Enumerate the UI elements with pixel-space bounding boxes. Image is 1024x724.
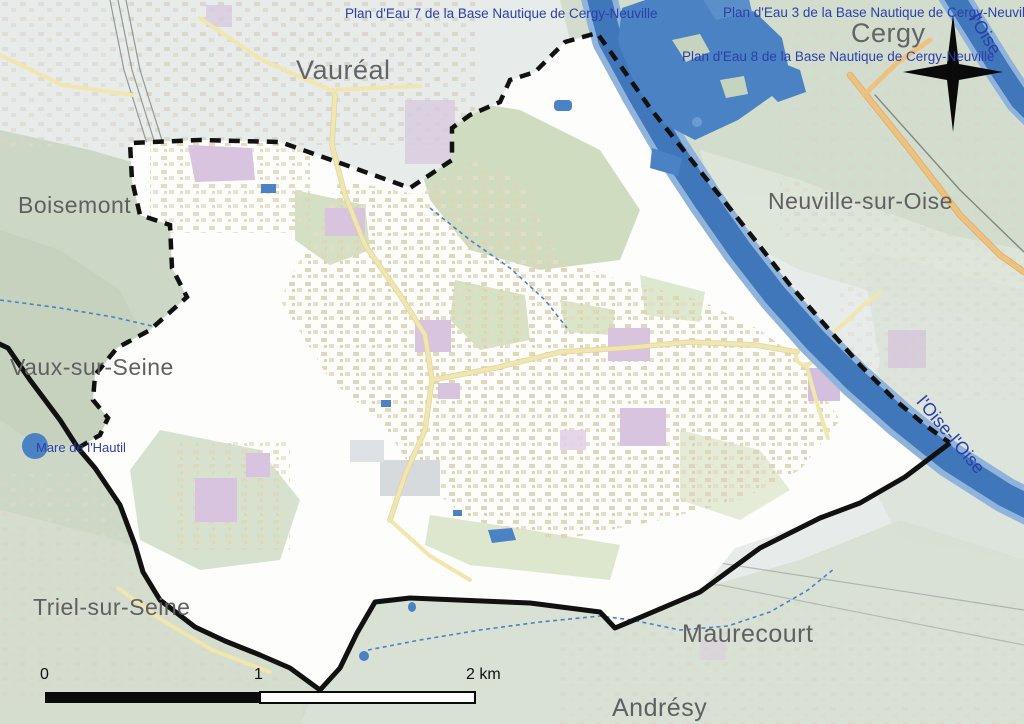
scale-bar (45, 692, 475, 703)
map-canvas: Plan d'Eau 7 de la Base Nautique de Cerg… (0, 0, 1024, 724)
map-graphic (0, 0, 1024, 724)
mare-hautil-pond (22, 433, 48, 459)
